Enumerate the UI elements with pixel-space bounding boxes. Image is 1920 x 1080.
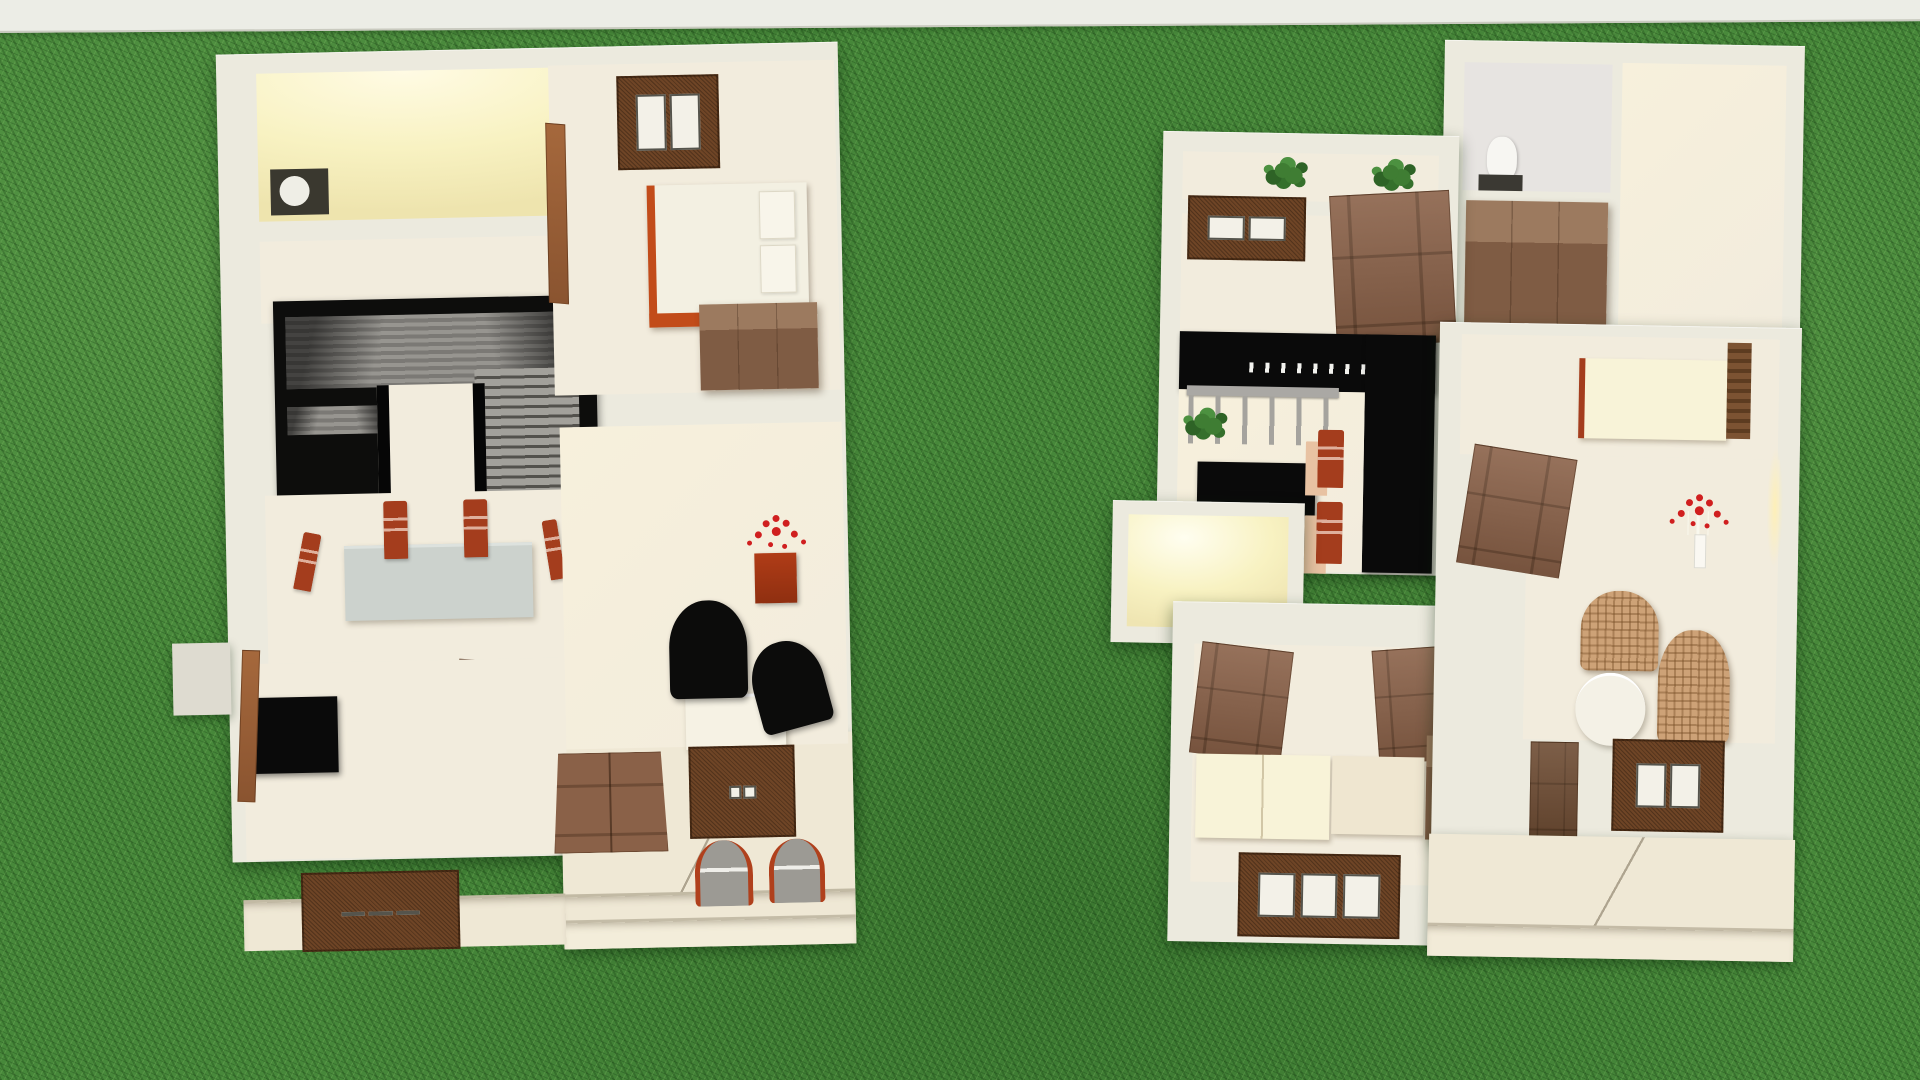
stove-burner <box>279 176 310 207</box>
living-room <box>242 657 568 860</box>
bedroom-wardrobe <box>699 302 819 390</box>
balcony-plant <box>1383 165 1399 180</box>
pavement-strip <box>0 0 1920 33</box>
window-pane <box>396 910 420 914</box>
window-pane <box>1343 874 1380 919</box>
porch-chair <box>768 838 825 903</box>
bath-mat <box>1478 174 1522 191</box>
dining-chair <box>293 532 322 592</box>
dining-chair <box>463 499 488 557</box>
wall-light-glow <box>1766 447 1784 567</box>
dining-room <box>265 489 598 664</box>
staircase <box>273 295 599 500</box>
right-block-south-east <box>1431 322 1802 848</box>
window-pane <box>1258 873 1295 918</box>
living-open-door <box>1456 444 1577 579</box>
porch-chair <box>694 840 753 907</box>
bottle-row <box>1249 362 1379 374</box>
window-pane <box>1248 216 1286 241</box>
window-pane <box>1635 763 1666 808</box>
ladder-shelf <box>1726 343 1752 439</box>
stair-left-landing <box>287 405 388 435</box>
dining-chair <box>383 501 408 559</box>
main-entry-double-door <box>552 751 668 853</box>
leaning-door <box>237 650 260 802</box>
north-bedroom-window <box>1187 195 1306 261</box>
terrace-floor <box>1427 834 1795 962</box>
bathroom-room <box>1462 62 1612 193</box>
mattress <box>1331 756 1424 836</box>
south-triple-window <box>1237 852 1400 939</box>
dining-table <box>344 542 534 621</box>
window-pane <box>669 94 700 150</box>
north-bedroom-door <box>1329 190 1457 348</box>
upper-hallway-room <box>1618 63 1787 328</box>
pillow <box>760 245 797 294</box>
right-block-north-east <box>1440 40 1805 346</box>
tv-cabinet <box>245 696 339 774</box>
wicker-armchair <box>1580 590 1659 671</box>
entrance-double-window <box>688 745 796 839</box>
kitchen-chair <box>1316 502 1343 564</box>
cream-bed <box>1578 358 1727 441</box>
bedroom-room <box>548 60 841 396</box>
pillow <box>759 191 796 240</box>
living-triple-window <box>301 870 461 952</box>
window-pane <box>1669 764 1700 809</box>
left-floorplan <box>215 32 859 960</box>
window-pane <box>341 911 365 915</box>
kitchen-room <box>256 67 589 222</box>
window-pane <box>729 785 742 798</box>
porch-step <box>564 914 857 949</box>
bedroom-double-window <box>616 74 720 170</box>
terrace-step <box>1427 923 1794 962</box>
living-standing-door <box>1529 741 1579 844</box>
left-side-step <box>172 642 231 715</box>
wicker-sofa <box>1657 630 1731 743</box>
window-pane <box>369 911 393 915</box>
black-armchair <box>668 600 748 700</box>
south-bedroom-door <box>1189 641 1294 763</box>
window-pane <box>1207 215 1245 240</box>
mattress <box>1195 754 1330 840</box>
flower-stand <box>754 553 797 604</box>
window-pane <box>743 785 756 798</box>
stove <box>270 168 329 215</box>
window-pane <box>636 94 667 150</box>
right-floorplan <box>1097 28 1813 970</box>
sitting-room <box>560 422 849 750</box>
bar-railing-posts <box>1188 395 1339 446</box>
balcony-plant <box>1275 163 1291 178</box>
kitchen-chair <box>1317 430 1344 488</box>
living-double-window <box>1611 739 1725 833</box>
scene <box>0 0 1920 1080</box>
flower-bouquet <box>772 527 781 536</box>
kitchen-counter-side <box>1362 334 1436 573</box>
stair-void <box>377 383 487 497</box>
flower-vase <box>1694 534 1707 568</box>
bedroom-open-door <box>545 123 569 305</box>
window-pane <box>1300 873 1337 918</box>
large-wardrobe <box>1464 200 1608 340</box>
